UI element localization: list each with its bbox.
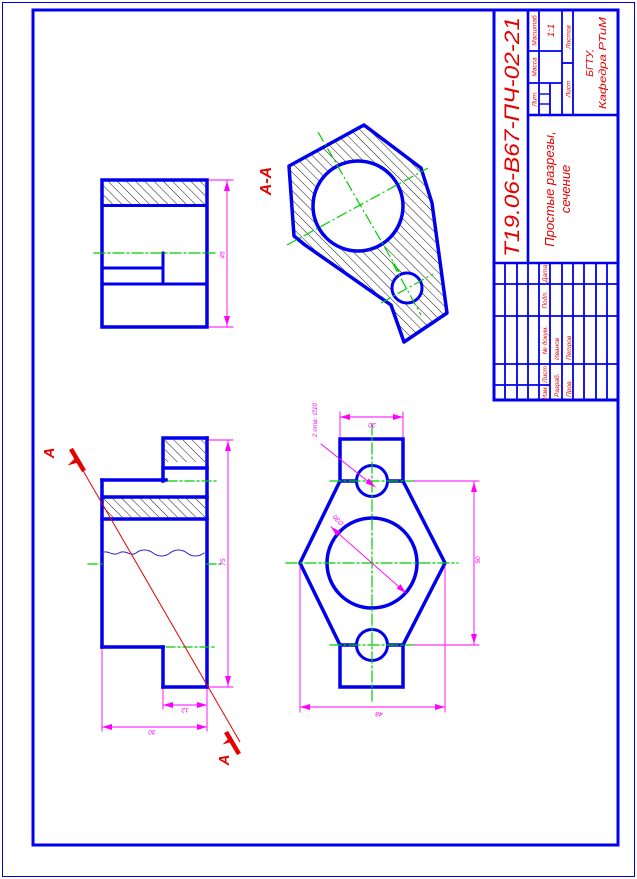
- front-hatch-band: [102, 181, 207, 204]
- dim-side-height: 75: [220, 558, 227, 566]
- lit-label: Лит.: [532, 91, 539, 107]
- holes-note-label: 2 отв. ∅10: [312, 402, 319, 438]
- rev-header-doc: № докум.: [541, 325, 549, 354]
- checked-name: Петров: [566, 335, 573, 360]
- section-view-label: А-А: [258, 167, 275, 196]
- checked-label: Пров.: [566, 380, 573, 397]
- sheet-label: Лист: [566, 80, 573, 98]
- section-aa-hole: [392, 273, 422, 303]
- rev-header-list: Лист: [542, 366, 549, 384]
- drawing-title-line1: Простые разрезы,: [542, 131, 557, 246]
- cut-letter-top: А: [41, 448, 58, 460]
- rev-header-podp: Подп.: [541, 291, 549, 308]
- drawing-title-line2: сечение: [558, 165, 573, 214]
- developed-name: Иванов: [554, 337, 561, 360]
- sheets-label: Листов: [566, 25, 573, 50]
- drawing-page: 45 А-А: [0, 0, 637, 879]
- organization-line1: БГТУ,: [584, 49, 596, 77]
- rev-header-data: Дата: [542, 265, 549, 284]
- dim-hex-width: 48: [375, 710, 383, 717]
- doc-number: Т19.06-В67-ПЧ-02-21: [501, 17, 524, 257]
- scale-value: 1:1: [546, 24, 557, 37]
- mass-label: Масса: [532, 57, 539, 77]
- dim-hex-tab: 20: [368, 421, 377, 428]
- dim-side-width: 30: [148, 728, 156, 735]
- cad-drawing-canvas: 45 А-А: [0, 0, 637, 879]
- organization-line2: Кафедра РТиМ: [597, 17, 609, 109]
- developed-label: Разраб.: [553, 373, 561, 397]
- rev-header-izm: Изм.: [542, 385, 549, 399]
- dim-front-height: 45: [220, 251, 227, 259]
- dim-hex-height: 50: [475, 556, 482, 564]
- cut-letter-bottom: А: [216, 755, 233, 767]
- scale-label: Масштаб: [531, 15, 539, 46]
- dim-side-step: 12: [181, 706, 189, 713]
